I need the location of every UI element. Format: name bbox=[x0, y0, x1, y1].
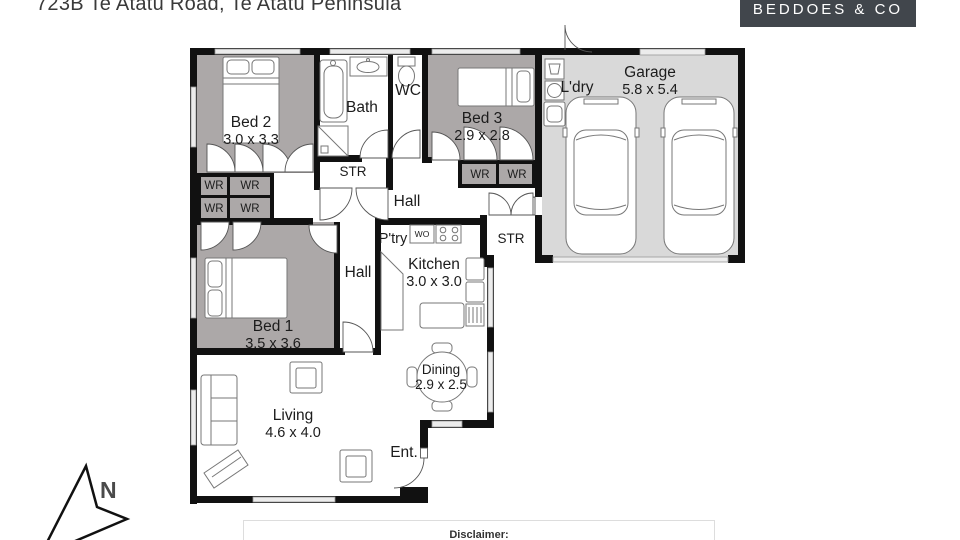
garage-label: Garage bbox=[624, 64, 676, 81]
floorplan-drawing: Bed 2 3.0 x 3.3 Bath WC Bed 3 2.9 x 2.8 … bbox=[0, 0, 960, 540]
pantry-shelves bbox=[381, 252, 403, 330]
laundry-label: L'dry bbox=[560, 79, 593, 96]
kitchen-counter bbox=[420, 303, 464, 328]
north-arrow: N bbox=[40, 466, 127, 540]
wr-label-6: WR bbox=[507, 169, 526, 181]
car-1 bbox=[563, 97, 639, 254]
garage-dims: 5.8 x 5.4 bbox=[622, 82, 678, 98]
hall-top-label: Hall bbox=[394, 193, 421, 210]
bed2-dims: 3.0 x 3.3 bbox=[223, 132, 279, 148]
fridge bbox=[466, 258, 484, 326]
dining-label: Dining bbox=[422, 362, 460, 377]
wc-label: WC bbox=[395, 82, 421, 99]
car-2 bbox=[661, 97, 737, 254]
disclaimer-heading: Disclaimer: bbox=[449, 529, 508, 540]
bed1-bed bbox=[205, 258, 287, 318]
bath-sink bbox=[350, 57, 387, 76]
bathtub bbox=[320, 60, 347, 122]
sofa bbox=[201, 375, 237, 445]
north-label: N bbox=[100, 477, 117, 503]
bed2-label: Bed 2 bbox=[231, 114, 272, 131]
entry-door-leaf bbox=[421, 448, 428, 458]
wr-label-2: WR bbox=[240, 180, 259, 192]
storage-mid-label: STR bbox=[498, 231, 525, 246]
kitchen-label: Kitchen bbox=[408, 256, 460, 273]
armchair-2 bbox=[340, 450, 372, 482]
entry-label: Ent. bbox=[390, 444, 418, 461]
wr-label-4: WR bbox=[240, 203, 259, 215]
kitchen-dims: 3.0 x 3.0 bbox=[406, 274, 462, 290]
living-label: Living bbox=[273, 407, 314, 424]
disclaimer-box: Disclaimer: bbox=[243, 520, 715, 540]
armchair-1 bbox=[290, 362, 322, 393]
bed3-label: Bed 3 bbox=[462, 110, 503, 127]
storage-top-label: STR bbox=[340, 164, 367, 179]
pantry-label: P'try bbox=[379, 231, 408, 247]
cooktop bbox=[436, 225, 461, 243]
hall-mid-label: Hall bbox=[345, 264, 372, 281]
wall-oven-label: WO bbox=[415, 229, 430, 239]
wr-label-1: WR bbox=[204, 180, 223, 192]
shower bbox=[318, 126, 348, 156]
bed1-dims: 3.5 x 3.6 bbox=[245, 336, 301, 352]
tv-unit bbox=[204, 450, 248, 488]
bed1-label: Bed 1 bbox=[253, 318, 294, 335]
wr-label-5: WR bbox=[470, 169, 489, 181]
floorplan-page: 723B Te Atatu Road, Te Atatu Peninsula B… bbox=[0, 0, 960, 540]
dining-dims: 2.9 x 2.5 bbox=[415, 377, 467, 392]
bed3-bed bbox=[458, 68, 534, 106]
wr-label-3: WR bbox=[204, 203, 223, 215]
garage-door bbox=[553, 257, 728, 262]
bath-label: Bath bbox=[346, 99, 378, 116]
bed3-dims: 2.9 x 2.8 bbox=[454, 128, 510, 144]
living-dims: 4.6 x 4.0 bbox=[265, 425, 321, 441]
